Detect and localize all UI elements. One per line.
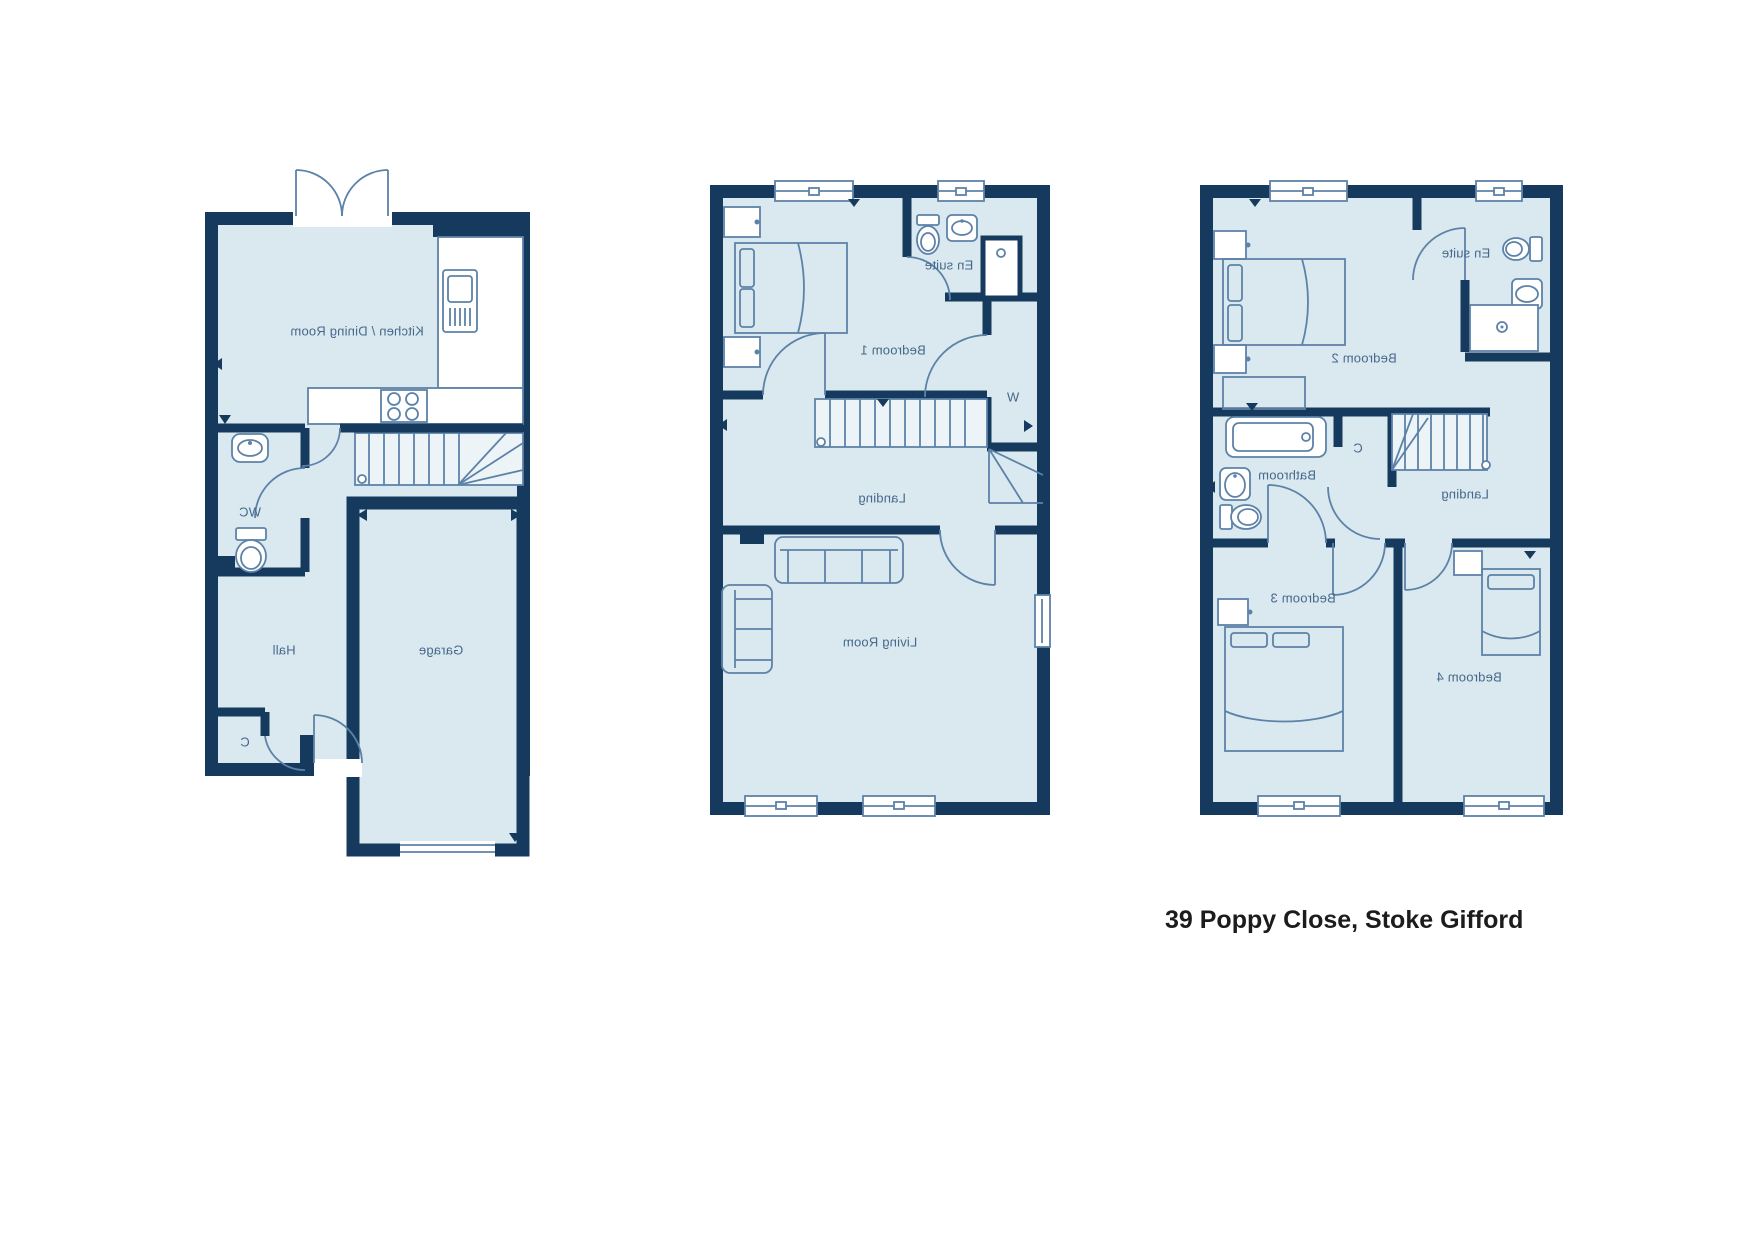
shower-icon [983, 238, 1020, 298]
bathtub-icon [1226, 417, 1326, 457]
radiator-icon [1035, 595, 1050, 647]
floorplan-sheet: Kitchen / Dining Room WC Hall Garage C [0, 0, 1755, 1241]
toilet-icon [1503, 237, 1542, 261]
room-label-wardrobe: W [1007, 390, 1019, 405]
kitchen-sink-icon [443, 270, 477, 332]
bedside-table [1218, 599, 1248, 625]
garage-door-icon [400, 841, 495, 858]
ground-floor-plan: Kitchen / Dining Room WC Hall Garage C [205, 147, 530, 857]
room-label-cupboard-ground: C [240, 735, 250, 750]
window-icon [1464, 796, 1544, 816]
second-floor-drawing [1200, 177, 1563, 823]
stairs [1392, 414, 1490, 470]
ground-floor-drawing [205, 147, 530, 857]
bedside-table [1214, 345, 1246, 373]
room-label-living-room: Living Room [843, 635, 917, 650]
room-label-landing-first: Landing [858, 491, 906, 506]
room-label-hall: Hall [272, 643, 295, 658]
outer-walls [1207, 192, 1557, 809]
window-icon [938, 181, 984, 201]
window-icon [1258, 796, 1340, 816]
bedside-table [1454, 551, 1482, 575]
stairs [355, 433, 523, 485]
room-label-ensuite-first: En suite [925, 258, 974, 273]
sink-icon [947, 215, 977, 241]
entry-double-door-icon [296, 170, 388, 216]
sink-icon [1220, 468, 1250, 500]
window-icon [745, 796, 817, 816]
window-icon [1476, 181, 1522, 201]
room-label-bedroom2: Bedroom 2 [1331, 351, 1396, 366]
room-label-bedroom3: Bedroom 3 [1270, 591, 1335, 606]
toilet-icon [1220, 505, 1261, 529]
room-label-bedroom4: Bedroom 4 [1436, 670, 1501, 685]
sink-icon [232, 434, 268, 462]
toilet-icon [236, 528, 266, 572]
room-label-bathroom: Bathroom [1258, 468, 1316, 483]
first-floor-plan: Bedroom 1 En suite W Landing Living Room [710, 177, 1050, 823]
window-icon [1270, 181, 1347, 201]
toilet-icon [917, 215, 939, 254]
room-label-cupboard-second: C [1353, 441, 1363, 456]
room-label-ensuite-second: En suite [1442, 246, 1491, 261]
room-label-landing-second: Landing [1441, 487, 1489, 502]
window-icon [863, 796, 935, 816]
window-icon [775, 181, 853, 201]
room-label-bedroom1: Bedroom 1 [860, 343, 925, 358]
room-label-wc: WC [239, 505, 261, 520]
bedside-table [1214, 231, 1246, 259]
shower-tray-icon [1470, 305, 1538, 351]
room-label-garage: Garage [419, 643, 464, 658]
room-label-kitchen-dining: Kitchen / Dining Room [290, 324, 424, 339]
second-floor-plan: Bedroom 2 En suite Bathroom C Landing Be… [1200, 177, 1563, 823]
address-caption: 39 Poppy Close, Stoke Gifford [1165, 906, 1523, 935]
